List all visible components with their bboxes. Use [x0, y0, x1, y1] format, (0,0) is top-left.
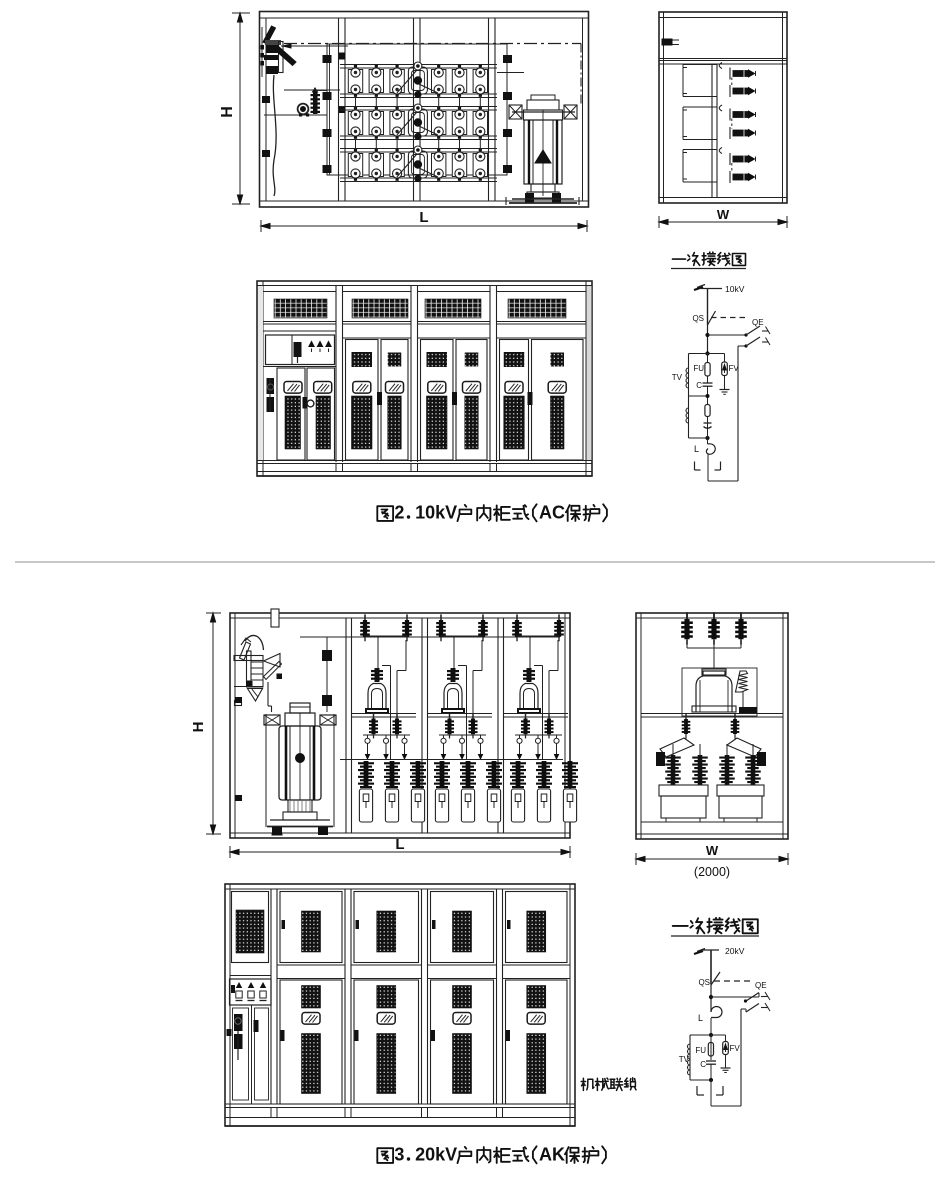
- svg-text:20kV: 20kV: [415, 1145, 457, 1165]
- svg-text:L: L: [419, 209, 428, 226]
- svg-text:QS: QS: [698, 978, 710, 987]
- svg-text:W: W: [717, 207, 730, 222]
- svg-text:AC: AC: [539, 503, 565, 523]
- svg-text:AK: AK: [539, 1145, 565, 1165]
- svg-text:L: L: [698, 1013, 703, 1023]
- svg-text:FU: FU: [695, 1046, 706, 1055]
- svg-text:C: C: [700, 1060, 706, 1069]
- svg-text:QE: QE: [755, 981, 767, 990]
- svg-text:H: H: [219, 106, 236, 118]
- svg-text:C: C: [696, 381, 702, 390]
- svg-text:QE: QE: [752, 318, 764, 327]
- svg-text:W: W: [706, 843, 719, 858]
- svg-text:H: H: [190, 722, 207, 733]
- svg-text:2: 2: [394, 503, 404, 523]
- svg-text:FU: FU: [693, 364, 704, 373]
- svg-text:10kV: 10kV: [415, 503, 457, 523]
- svg-text:L: L: [395, 836, 404, 853]
- svg-text:3: 3: [394, 1145, 404, 1165]
- svg-text:QS: QS: [692, 314, 704, 323]
- svg-text:FV: FV: [730, 1044, 741, 1053]
- svg-text:10kV: 10kV: [725, 284, 745, 294]
- svg-text:TV: TV: [672, 373, 683, 382]
- svg-text:L: L: [694, 444, 699, 454]
- svg-text:(2000): (2000): [694, 865, 730, 879]
- svg-text:20kV: 20kV: [725, 946, 745, 956]
